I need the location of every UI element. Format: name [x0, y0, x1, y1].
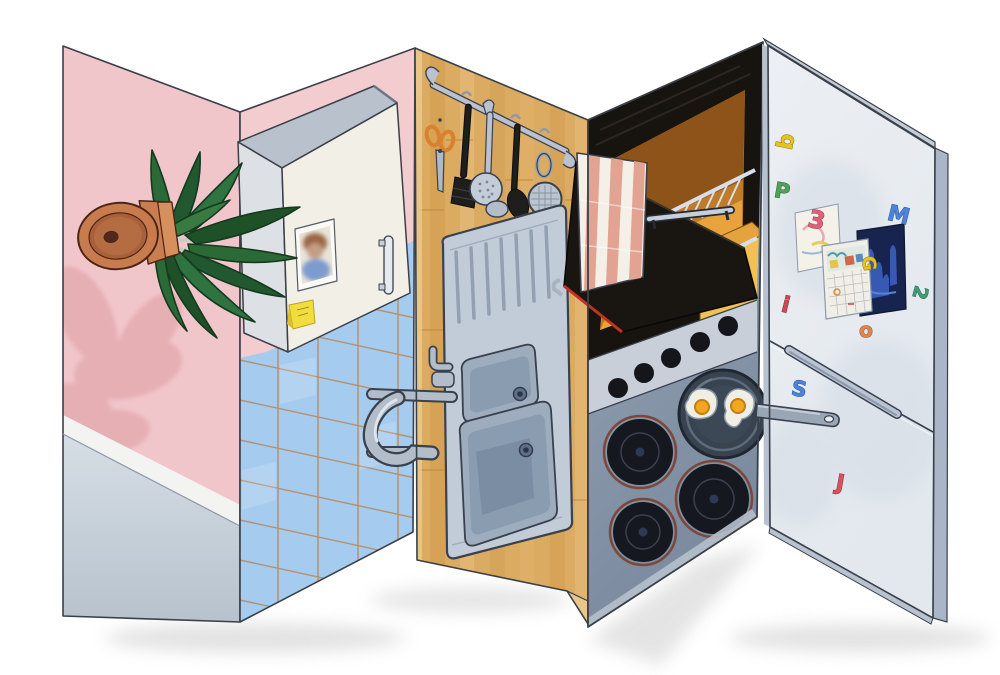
- burner: [604, 416, 676, 488]
- sink-unit: [443, 206, 573, 559]
- pink-wall-panel: [32, 46, 240, 622]
- magnet-letter: o: [859, 318, 873, 342]
- artwork-photo: bP3MG2ioSJ: [0, 0, 1000, 675]
- frying-pan: [679, 370, 767, 458]
- sticky-note: [287, 300, 315, 329]
- artwork-canvas: bP3MG2ioSJ: [0, 0, 1000, 675]
- fridge-panel: bP3MG2ioSJ: [756, 39, 948, 624]
- magnet-letter: G: [857, 255, 879, 272]
- burner: [610, 499, 676, 565]
- cabinet-side: [238, 142, 288, 352]
- calendar: [822, 239, 872, 319]
- cabinet-photo: [295, 219, 337, 291]
